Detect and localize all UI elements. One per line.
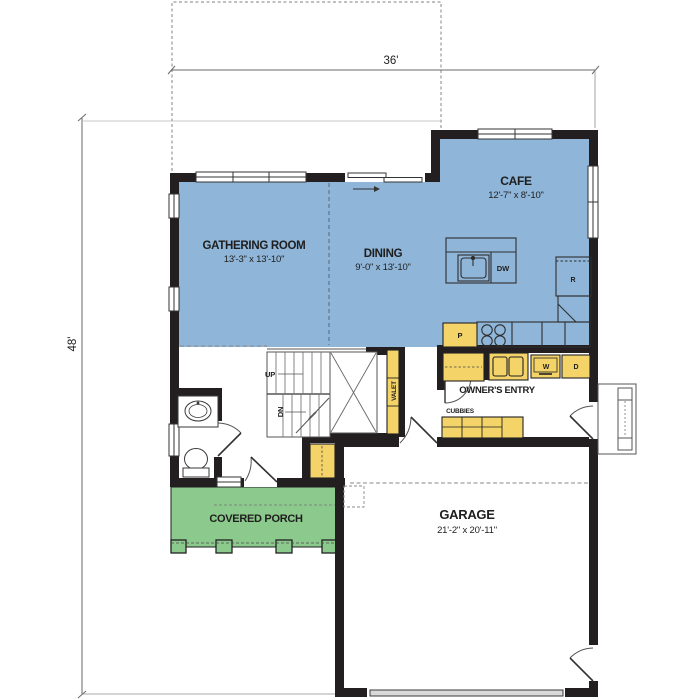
width-dimension-label: 36': [384, 55, 399, 67]
entry-stoop: [598, 384, 636, 454]
stairs-up-label: UP: [265, 370, 275, 379]
washer-letter: W: [543, 364, 550, 371]
garage-label: GARAGE: [439, 507, 495, 522]
entry-closet: [443, 353, 484, 381]
gathering-window: [196, 172, 306, 182]
gathering-room-size: 13'-3" x 13'-10": [224, 254, 285, 265]
stairs-down-label: DN: [276, 407, 285, 417]
powder-window: [169, 424, 179, 456]
gathering-room-label: GATHERING ROOM: [203, 240, 306, 252]
refrigerator-letter: R: [570, 277, 575, 284]
toilet-tank: [183, 468, 209, 477]
cafe-label: CAFE: [500, 174, 532, 188]
dryer-letter: D: [573, 364, 578, 371]
owners-entry-label: OWNER'S ENTRY: [459, 385, 536, 396]
dishwasher-letter: DW: [497, 264, 510, 273]
foyer-front-window: [217, 477, 241, 487]
cafe-side-window: [588, 166, 598, 238]
powder-room-fixtures: [178, 396, 218, 477]
garage-corner-dashed: [344, 486, 364, 507]
laundry-sink-cabinet: [489, 353, 528, 380]
floor-plan-svg: 36' 48': [0, 0, 700, 700]
garage-size: 21'-2" x 20'-11": [437, 525, 497, 536]
depth-dimension-label: 48': [67, 337, 79, 352]
cubbies-label: CUBBIES: [446, 408, 475, 415]
understair-closet: [330, 352, 377, 433]
pantry-letter: P: [457, 331, 462, 340]
covered-porch-label: COVERED PORCH: [209, 513, 303, 525]
floor-plan-page: 36' 48': [0, 0, 700, 700]
gathering-side-window-1: [169, 194, 179, 218]
cafe-size: 12'-7" x 8'-10": [488, 190, 543, 201]
toilet-bowl: [185, 449, 208, 470]
dining-label: DINING: [364, 248, 403, 260]
cubbies-unit: [442, 417, 523, 438]
cafe-top-window: [478, 129, 552, 139]
dining-size: 9'-0" x 13'-10": [355, 262, 410, 273]
gathering-side-window-2: [169, 287, 179, 311]
valet-label: VALET: [391, 381, 398, 401]
garage-overhead-door: [370, 690, 563, 696]
upper-floor-outline: [172, 2, 441, 173]
coat-closet: [310, 444, 335, 478]
